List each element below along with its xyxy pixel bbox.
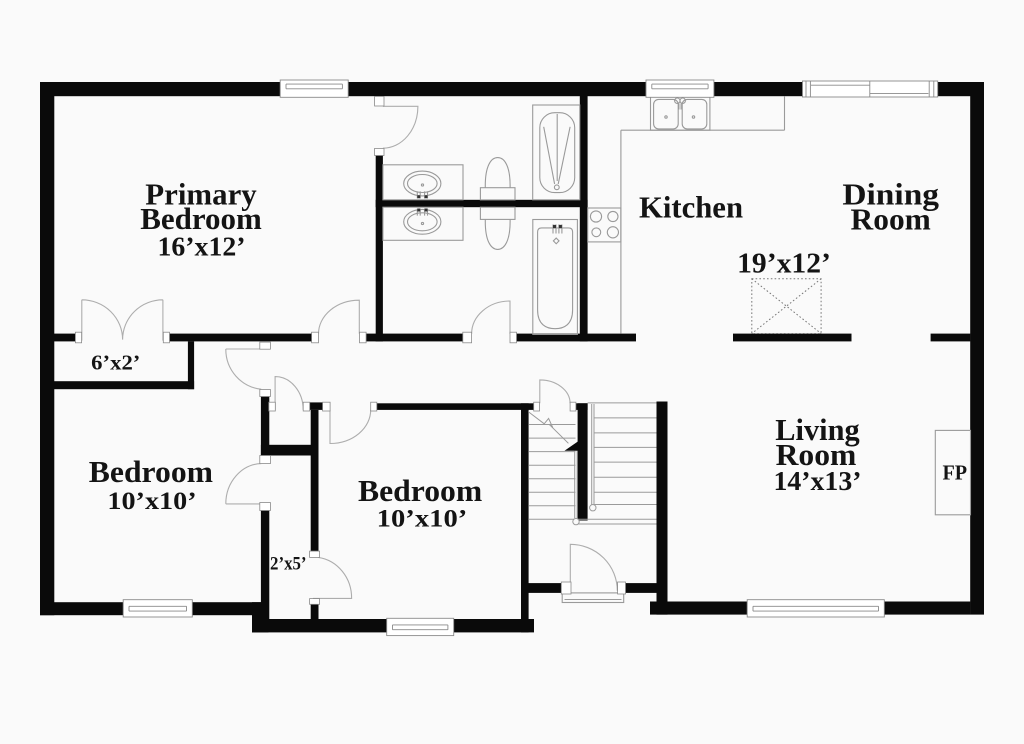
svg-text:Bedroom: Bedroom xyxy=(89,454,213,489)
svg-text:6’x2’: 6’x2’ xyxy=(91,351,140,375)
svg-text:FP: FP xyxy=(943,461,968,485)
svg-text:14’x13’: 14’x13’ xyxy=(774,466,862,496)
svg-text:Bedroom: Bedroom xyxy=(358,473,482,508)
svg-text:Kitchen: Kitchen xyxy=(639,189,743,224)
svg-text:Room: Room xyxy=(851,201,931,236)
svg-text:2’x5’: 2’x5’ xyxy=(270,554,307,575)
svg-text:10’x10’: 10’x10’ xyxy=(107,488,196,515)
svg-text:16’x12’: 16’x12’ xyxy=(158,231,246,261)
svg-text:10’x10’: 10’x10’ xyxy=(377,506,468,533)
svg-text:19’x12’: 19’x12’ xyxy=(737,248,831,280)
